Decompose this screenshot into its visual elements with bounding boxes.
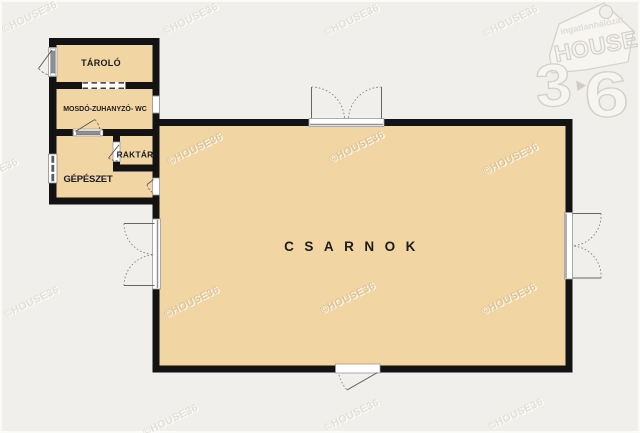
svg-text:3: 3 — [533, 51, 574, 120]
svg-text:CSARNOK: CSARNOK — [284, 239, 426, 254]
svg-text:GÉPÉSZET: GÉPÉSZET — [63, 174, 112, 185]
svg-text:TÁROLÓ: TÁROLÓ — [81, 57, 121, 68]
svg-text:6: 6 — [582, 57, 631, 132]
svg-text:RAKTÁR: RAKTÁR — [117, 150, 154, 160]
svg-text:MOSDÓ-ZUHANYZÓ- WC: MOSDÓ-ZUHANYZÓ- WC — [63, 104, 147, 113]
